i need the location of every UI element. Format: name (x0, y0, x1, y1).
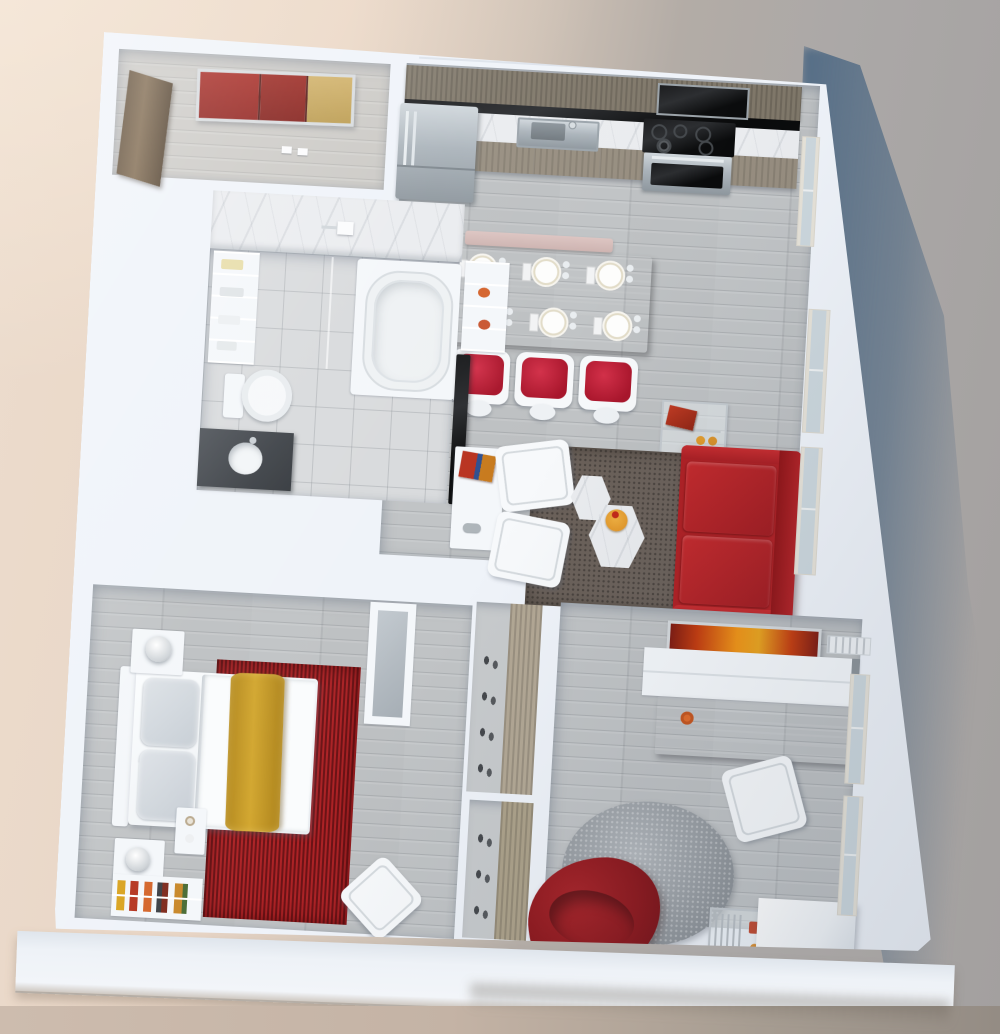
den-desk (655, 696, 858, 765)
art-panel-red (199, 72, 262, 120)
art-panel-darkred (260, 74, 308, 122)
bathtub-basin (370, 279, 446, 385)
bath-towel-shelves (208, 250, 260, 364)
saucer (185, 834, 194, 843)
wardrobe (364, 602, 417, 726)
lounge-chair (486, 510, 571, 589)
towels (219, 287, 243, 297)
oven (642, 152, 732, 195)
closet-lower (462, 800, 534, 941)
game-controller (463, 523, 481, 533)
light-switch (297, 148, 307, 156)
yellow-bed-runner (225, 673, 285, 833)
cup-orange (696, 436, 705, 445)
dining-chair-red (578, 355, 639, 412)
sofa-cushion (683, 461, 777, 536)
art-panel-gold (306, 76, 352, 124)
magazine-red (665, 405, 697, 431)
oven-handle (652, 156, 724, 163)
towels (218, 315, 240, 325)
dining-chair-red (514, 352, 575, 409)
low-bookshelf (111, 874, 203, 921)
closet-upper (466, 602, 543, 795)
cup-orange (708, 436, 717, 445)
burner (656, 138, 672, 154)
cooktop (642, 118, 736, 157)
sink-basin (531, 122, 566, 141)
entry-wall-art (196, 69, 356, 127)
towels (216, 341, 236, 351)
light-switch (282, 146, 292, 154)
foot-table (174, 807, 207, 855)
closet-shoes (473, 650, 504, 783)
shower-valve (337, 221, 354, 235)
towels (221, 259, 244, 270)
closet-shoes (469, 828, 498, 925)
cart-slats (713, 914, 741, 959)
burner (698, 140, 714, 156)
bathtub (360, 269, 455, 394)
sofa-cushion (679, 535, 773, 608)
bed-pillow (140, 677, 200, 748)
air-vent (826, 635, 871, 655)
closet-wood-panel (500, 604, 543, 795)
coffee-cup (185, 816, 196, 827)
burner (673, 124, 688, 139)
decor-bowl-orange (478, 319, 491, 330)
media-storage-shelf (461, 261, 510, 353)
living-window (803, 310, 830, 433)
wardrobe-front (372, 610, 408, 718)
books-stack (458, 451, 496, 483)
microwave (656, 83, 750, 120)
credenza-seam (643, 670, 859, 684)
floor-plan-render (0, 0, 1000, 1034)
oven-window (650, 163, 723, 189)
red-sofa (672, 445, 802, 625)
decor-bowl-orange (478, 287, 491, 298)
lounge-chair (494, 439, 575, 513)
